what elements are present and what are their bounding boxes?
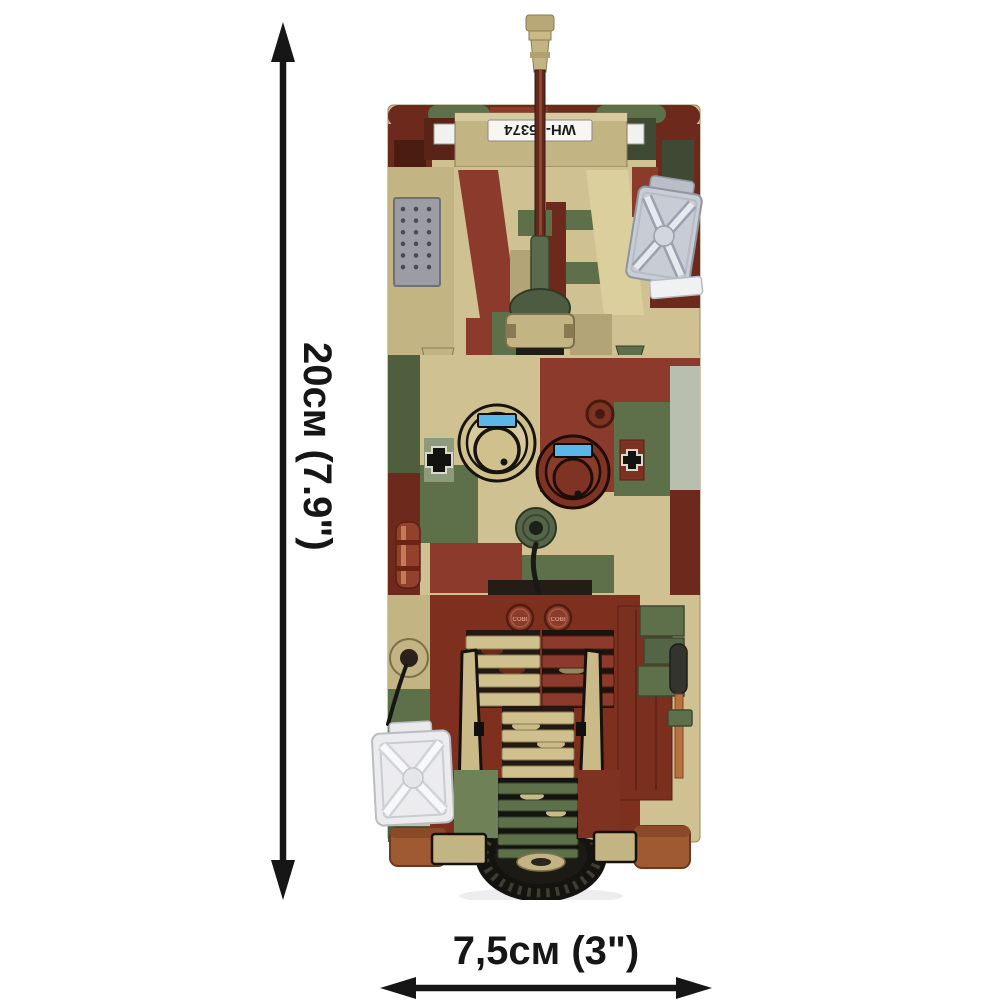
cobi-stud-left: COBI <box>507 605 533 631</box>
intake-grille-green-front <box>498 778 578 858</box>
round-port <box>587 401 613 427</box>
fire-extinguisher <box>396 522 420 588</box>
wheel-hub <box>517 853 565 871</box>
arrow-head-right-icon <box>676 977 712 999</box>
arrow-head-down-icon <box>271 860 295 900</box>
cobi-stud-logo-text: COBI <box>551 617 566 623</box>
muzzle-brake <box>526 15 554 72</box>
fender-bracket-right <box>594 832 636 862</box>
arrow-head-left-icon <box>380 977 416 999</box>
track-end-right <box>634 826 690 868</box>
fender-bracket-left <box>432 834 486 864</box>
product-image-stage: 20см (7.9") 7,5см (3") <box>0 0 1000 1000</box>
hatch-maroon <box>537 436 609 508</box>
fuel-can-white <box>371 720 454 826</box>
hatch-vision-slit-tan <box>478 414 516 427</box>
arrow-head-up-icon <box>271 22 295 62</box>
cobi-stud-logo-text: COBI <box>513 617 528 623</box>
height-dimension-label: 20см (7.9") <box>297 342 337 551</box>
tank-model-top-view: WH-55374 <box>370 10 710 900</box>
hatch-tan <box>459 405 535 481</box>
width-dimension-label: 7,5см (3") <box>453 931 639 971</box>
front-flank-left <box>454 770 498 838</box>
left-deck-column <box>388 167 454 357</box>
hatch-vision-slit-maroon <box>554 444 592 457</box>
cobi-stud-right: COBI <box>545 605 571 631</box>
intake-grille-tan-lower <box>502 706 574 780</box>
gun-barrel <box>535 70 545 246</box>
intake-grille-maroon-upper <box>542 630 614 708</box>
front-flank-right <box>578 770 620 838</box>
tail-light-left <box>434 124 458 144</box>
